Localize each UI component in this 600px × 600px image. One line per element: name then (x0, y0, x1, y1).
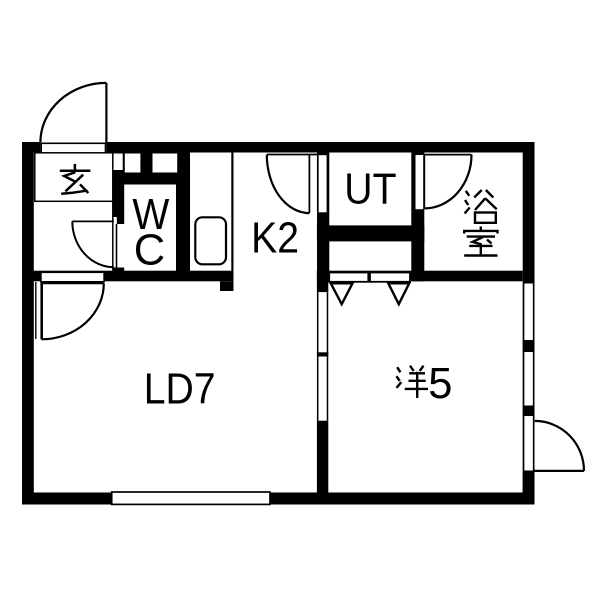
svg-text:K2: K2 (251, 214, 299, 262)
svg-text:C: C (134, 227, 165, 275)
svg-text:5: 5 (428, 360, 452, 408)
svg-text:LD7: LD7 (144, 364, 216, 412)
svg-text:UT: UT (344, 165, 396, 213)
